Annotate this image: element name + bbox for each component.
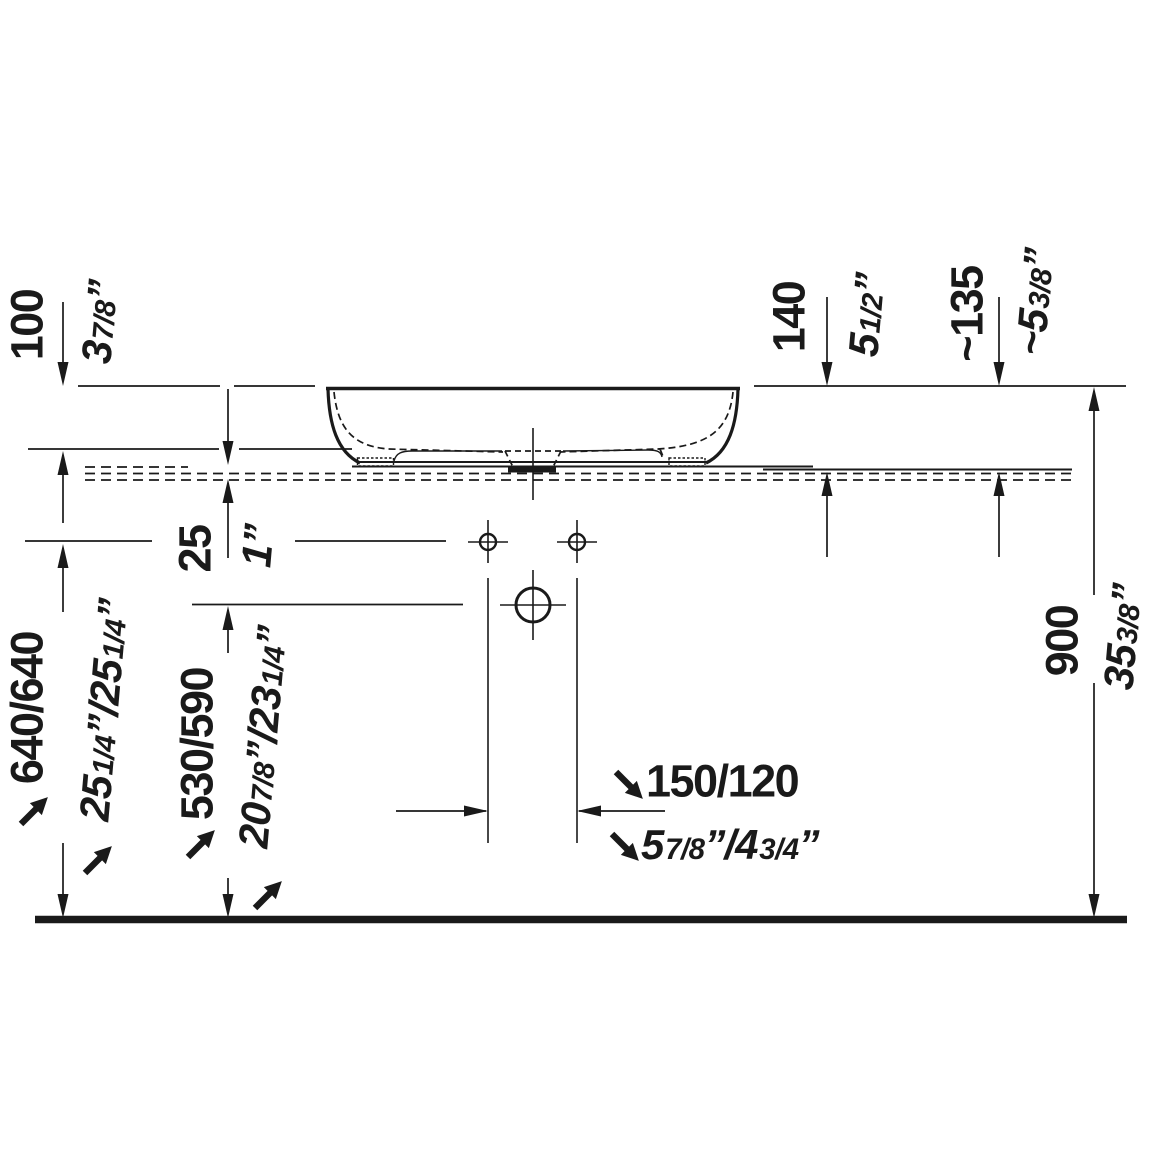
dim-tap-hole-distance-inch-label: 57/8”/43/4” — [641, 824, 819, 866]
dim-rim-offset-mm-label: 100 — [5, 290, 50, 361]
counter-surface-lines — [85, 467, 1075, 481]
leader-arrow-25-1-4 — [79, 840, 118, 879]
dim-rim-offset-inch-label: 37/8” — [75, 279, 124, 366]
drawing-linework — [0, 0, 1163, 1163]
dim-counter-thickness-inch-label: 1” — [235, 523, 281, 569]
leader-arrow-5-7-8 — [606, 828, 645, 867]
dim-basin-height-inch-label: 51/2” — [842, 272, 891, 359]
dim-basin-height-approx-inch-label: ~53/8” — [1009, 247, 1060, 357]
technical-drawing-canvas: 100 37/8” 140 51/2” ~135 ~53/8” 25 1” 64… — [0, 0, 1163, 1163]
dim-tap-hole-distance-mm-label: 150/120 — [646, 759, 798, 804]
dim-basin-height-approx-mm-label: ~135 — [945, 266, 990, 361]
dim-counter-to-floor-inch-label: 353/8” — [1097, 582, 1148, 691]
faucet-hole-marker-right — [557, 520, 597, 843]
leader-arrow-20-7-8 — [249, 875, 288, 914]
dimension-arrowheads — [58, 362, 1100, 918]
dim-basin-height-mm-label: 140 — [767, 282, 812, 353]
dim-rim-to-floor-mm-label: 640/640 — [5, 632, 50, 784]
dim-counter-thickness-mm-label: 25 — [173, 525, 218, 572]
faucet-hole-marker-left — [468, 520, 508, 843]
leader-arrow-150 — [610, 766, 649, 805]
leader-arrow-530 — [182, 824, 221, 863]
drain-hole-marker — [500, 570, 566, 640]
dim-outlet-to-floor-mm-label: 530/590 — [175, 668, 220, 820]
leader-arrow-640 — [15, 791, 54, 830]
drain-base — [508, 466, 556, 473]
dim-counter-to-floor-mm-label: 900 — [1040, 606, 1085, 677]
